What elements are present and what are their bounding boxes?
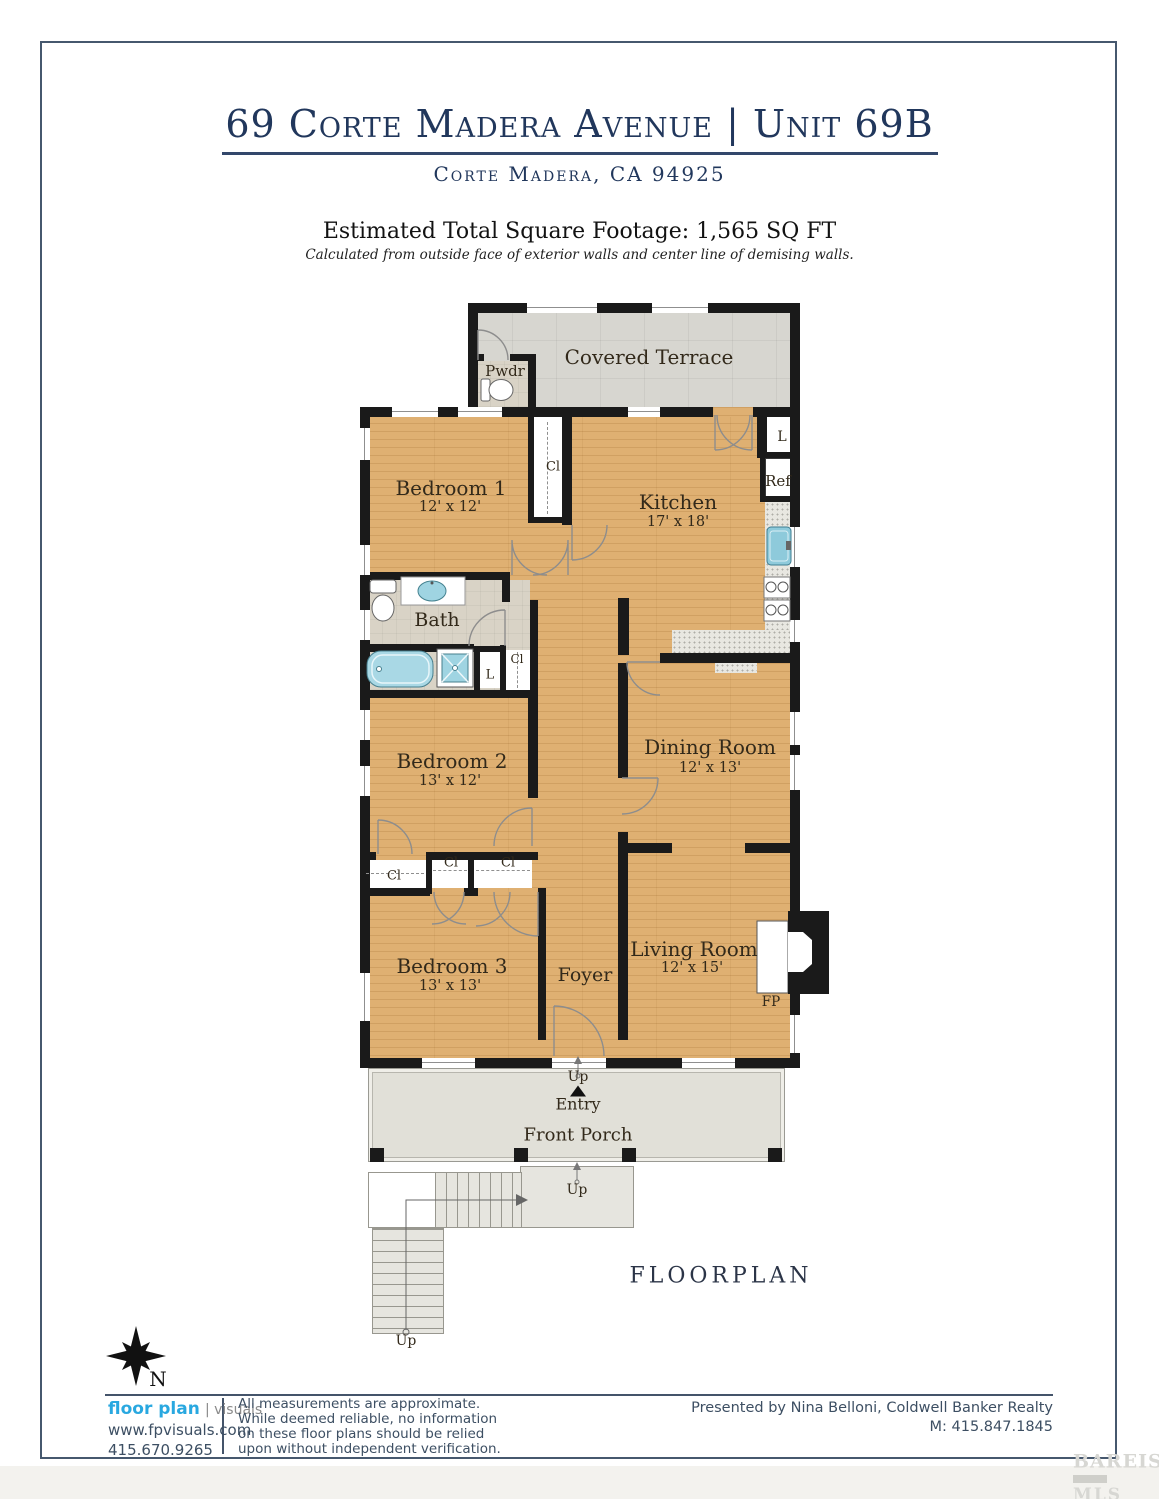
closet-label: Cl [501, 856, 515, 871]
mls-text: MLS [1073, 1485, 1122, 1499]
window [360, 610, 370, 640]
kitchen-counter-passthrough [715, 663, 757, 673]
window [360, 710, 370, 740]
room-label-dining: Dining Room [644, 735, 776, 759]
wall-segment [370, 572, 506, 580]
disclaimer-line: upon without independent verification. [238, 1442, 501, 1457]
window [422, 1058, 475, 1068]
porch-post [768, 1148, 782, 1162]
wall-segment [790, 303, 800, 1068]
wall-segment [745, 843, 790, 853]
room-label-foyer: Foyer [558, 964, 613, 986]
wall-segment [528, 698, 538, 798]
door-opening [713, 407, 753, 417]
stairs-lower-flight [372, 1228, 444, 1334]
room-label-living: Living Room [630, 937, 758, 961]
closet-label: Cl [387, 869, 401, 884]
wall-segment [468, 303, 800, 313]
wall-segment [502, 572, 510, 602]
disclaimer: All measurements are approximate. While … [238, 1397, 501, 1457]
brand-website: www.fpvisuals.com [108, 1421, 251, 1439]
window [360, 428, 370, 460]
wall-segment [760, 496, 792, 502]
kitchen-counter-right [765, 502, 790, 632]
window [360, 766, 370, 796]
wall-segment [360, 852, 376, 860]
room-dims-kitchen: 17' x 18' [647, 514, 709, 530]
wall-segment [366, 644, 474, 652]
floorplan-caption: FLOORPLAN [629, 1264, 812, 1289]
page-title: 69 Corte Madera Avenue | Unit 69B [0, 102, 1159, 146]
wall-segment [530, 600, 538, 690]
porch-post [370, 1148, 384, 1162]
window [458, 407, 502, 417]
presented-by-line: Presented by Nina Belloni, Coldwell Bank… [691, 1399, 1053, 1418]
title-underline [222, 152, 938, 155]
wall-segment [618, 843, 628, 1040]
window [790, 712, 800, 745]
porch-post [514, 1148, 528, 1162]
wall-segment [562, 417, 572, 525]
room-label-bath: Bath [414, 609, 459, 631]
fireplace-label: FP [762, 994, 780, 1010]
closet-label: Cl [546, 460, 560, 475]
wall-segment [528, 417, 534, 521]
presented-by-block: Presented by Nina Belloni, Coldwell Bank… [691, 1399, 1053, 1437]
bareis-text: BAREIS [1073, 1450, 1159, 1472]
room-dims-dining: 12' x 13' [679, 760, 741, 776]
disclaimer-line: All measurements are approximate. [238, 1397, 501, 1412]
stairs-side-box [368, 1172, 436, 1228]
disclaimer-line: on these floor plans should be relied [238, 1427, 501, 1442]
room-dims-bedroom2: 13' x 12' [419, 773, 481, 789]
wall-segment [528, 517, 572, 523]
up-label-stairs: Up [396, 1333, 417, 1349]
room-label-covered-terrace: Covered Terrace [565, 345, 734, 369]
room-label-bedroom3: Bedroom 3 [396, 954, 507, 978]
room-label-kitchen: Kitchen [639, 490, 717, 514]
bareis-line: BAREIS® [1073, 1449, 1157, 1470]
wall-segment [426, 852, 538, 860]
bottom-band [0, 1466, 1159, 1499]
room-dims-bedroom1: 12' x 12' [419, 499, 481, 515]
brand-name-bold: floor plan [108, 1399, 200, 1419]
window [652, 303, 708, 313]
window [790, 1015, 800, 1053]
mls-line: MLS [1073, 1470, 1157, 1499]
brand-phone: 415.670.9265 [108, 1441, 213, 1459]
bareis-mls-watermark: BAREIS® MLS [1073, 1449, 1157, 1499]
wall-segment [474, 646, 480, 690]
wall-segment [618, 832, 628, 843]
wall-segment [628, 843, 672, 853]
wall-segment [538, 888, 546, 1040]
floorplan-page: 69 Corte Madera Avenue | Unit 69B Corte … [0, 0, 1159, 1499]
page-subtitle: Corte Madera, CA 94925 [0, 162, 1159, 186]
mls-bar [1073, 1475, 1107, 1483]
room-label-bedroom2: Bedroom 2 [396, 749, 507, 773]
wall-segment [660, 653, 790, 663]
up-label-entry: Up [568, 1069, 589, 1085]
wall-segment [468, 354, 484, 361]
room-dims-bedroom3: 13' x 13' [419, 978, 481, 994]
closet-label: Cl [510, 652, 523, 666]
entry-threshold [552, 1058, 606, 1068]
entry-label: Entry [555, 1095, 600, 1114]
wall-segment [464, 888, 478, 896]
kitchen-counter-bottom [672, 630, 790, 653]
linen-label: L [486, 668, 495, 683]
linen-label: L [777, 429, 786, 445]
window [392, 407, 438, 417]
window [360, 545, 370, 575]
wall-segment [528, 354, 536, 411]
presented-phone: M: 415.847.1845 [691, 1418, 1053, 1437]
room-label-pwdr: Pwdr [485, 362, 525, 380]
compass-north-label: N [149, 1367, 167, 1391]
room-label-bedroom1: Bedroom 1 [395, 476, 506, 500]
window [628, 407, 660, 417]
disclaimer-line: While deemed reliable, no information [238, 1412, 501, 1427]
wall-segment [618, 663, 628, 778]
window [790, 620, 800, 642]
window [527, 303, 597, 313]
sqft-note: Calculated from outside face of exterior… [0, 247, 1159, 263]
sqft-line: Estimated Total Square Footage: 1,565 SQ… [0, 219, 1159, 244]
up-label-porch: Up [567, 1182, 588, 1198]
wall-segment [360, 888, 430, 896]
stairs-upper-flight [434, 1172, 522, 1228]
wall-segment [360, 690, 538, 698]
window [360, 973, 370, 1021]
refrigerator-label: Ref [765, 472, 791, 490]
room-label-front-porch: Front Porch [524, 1125, 633, 1146]
closet-label: Cl [444, 856, 458, 871]
wall-segment [618, 598, 629, 655]
room-dims-living: 12' x 15' [661, 960, 723, 976]
porch-post [622, 1148, 636, 1162]
window [682, 1058, 735, 1068]
window [790, 527, 800, 567]
window [790, 755, 800, 790]
